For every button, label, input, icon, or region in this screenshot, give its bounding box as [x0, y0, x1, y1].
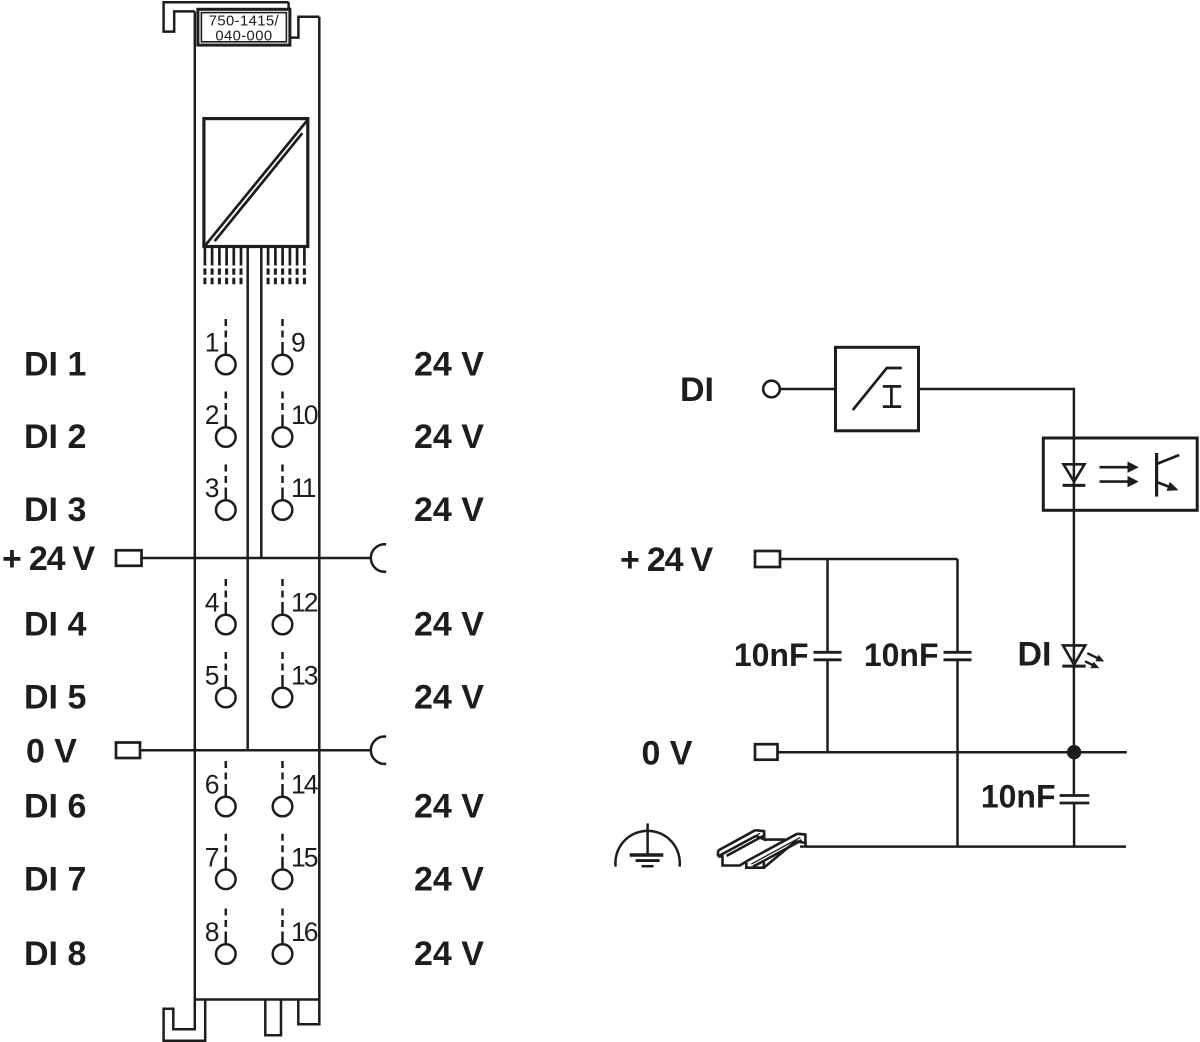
svg-text:0 V: 0 V [641, 735, 692, 773]
svg-text:24 V: 24 V [414, 860, 484, 898]
svg-text:11: 11 [291, 473, 316, 503]
svg-text:24 V: 24 V [414, 606, 484, 644]
svg-text:24 V: 24 V [414, 788, 484, 826]
svg-text:10nF: 10nF [981, 779, 1056, 815]
svg-text:24 V: 24 V [414, 346, 484, 384]
svg-text:13: 13 [291, 661, 318, 691]
svg-text:24 V: 24 V [414, 418, 484, 456]
svg-text:DI 6: DI 6 [24, 788, 86, 826]
svg-text:3: 3 [205, 473, 219, 503]
svg-text:0 V: 0 V [26, 733, 77, 771]
svg-text:DI: DI [1018, 636, 1052, 674]
svg-text:+ 24 V: + 24 V [620, 541, 714, 579]
svg-text:DI 7: DI 7 [24, 860, 86, 898]
svg-text:8: 8 [205, 917, 219, 947]
svg-text:DI 2: DI 2 [24, 418, 86, 456]
svg-text:040-000: 040-000 [215, 28, 272, 44]
svg-text:7: 7 [205, 842, 219, 872]
svg-text:6: 6 [205, 770, 219, 800]
svg-text:16: 16 [291, 917, 318, 947]
svg-text:1: 1 [205, 328, 219, 358]
svg-text:750-1415/: 750-1415/ [209, 14, 280, 30]
svg-text:12: 12 [291, 588, 318, 618]
svg-text:14: 14 [291, 770, 318, 800]
svg-text:15: 15 [291, 842, 318, 872]
svg-text:5: 5 [205, 661, 219, 691]
svg-text:10nF: 10nF [864, 637, 939, 673]
svg-text:DI 4: DI 4 [24, 606, 86, 644]
svg-text:DI 8: DI 8 [24, 935, 86, 973]
svg-text:10: 10 [291, 400, 318, 430]
svg-text:24 V: 24 V [414, 679, 484, 717]
svg-text:DI 3: DI 3 [24, 491, 86, 529]
svg-text:DI 5: DI 5 [24, 679, 86, 717]
svg-text:DI 1: DI 1 [24, 346, 86, 384]
svg-text:2: 2 [205, 400, 219, 430]
svg-text:DI: DI [680, 371, 714, 409]
svg-text:4: 4 [205, 588, 219, 618]
svg-text:24 V: 24 V [414, 491, 484, 529]
svg-text:10nF: 10nF [734, 637, 809, 673]
svg-text:24 V: 24 V [414, 935, 484, 973]
svg-text:+ 24 V: + 24 V [2, 540, 96, 578]
svg-text:9: 9 [291, 328, 305, 358]
